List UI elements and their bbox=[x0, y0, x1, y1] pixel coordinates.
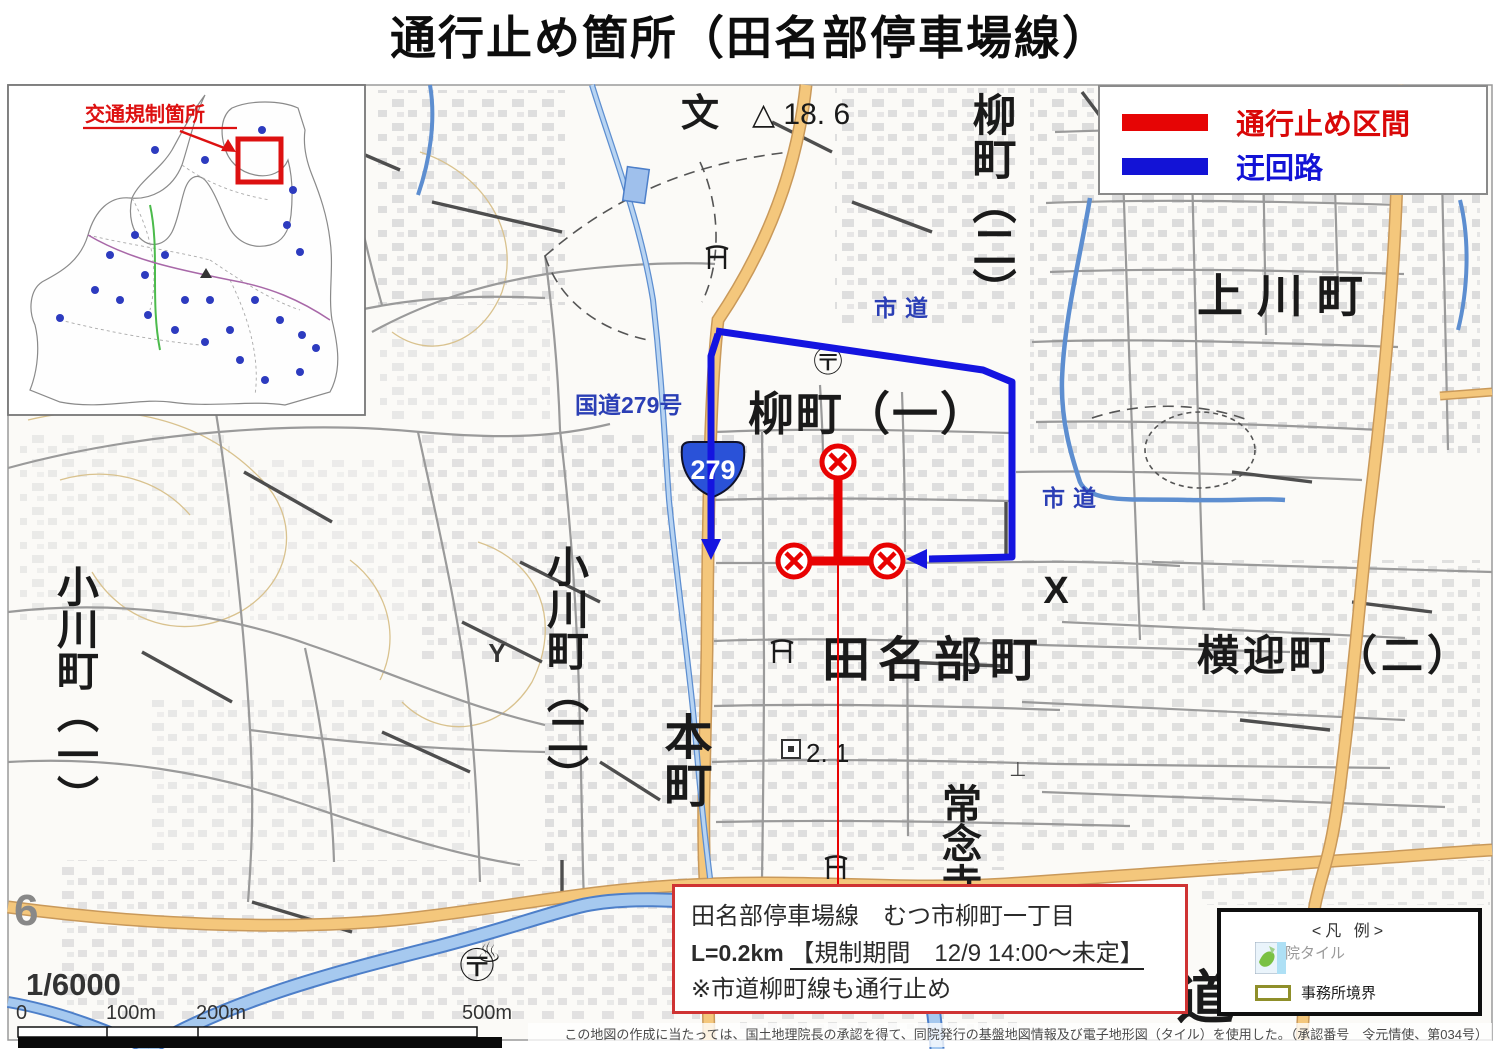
label-shido-right: 市道 bbox=[1042, 485, 1104, 511]
inset-map: 交通規制箇所 bbox=[8, 85, 365, 415]
label-tanabu: 田名部町 bbox=[822, 634, 1046, 687]
office-boundary-label: 事務所境界 bbox=[1301, 982, 1376, 1003]
map-legend: <凡 例> 地理院タイル 事務所境界 bbox=[1217, 908, 1482, 1016]
attribution-text: この地図の作成に当たっては、国土地理院長の承認を得て、同院発行の基盤地図情報及び… bbox=[528, 1023, 1492, 1047]
detour-line-swatch bbox=[1122, 158, 1208, 175]
gsi-tile-icon bbox=[1255, 942, 1286, 974]
label-tile-no: 6 bbox=[14, 886, 38, 935]
label-shido-top: 市道 bbox=[874, 295, 936, 321]
closed-line-label: 通行止め区間 bbox=[1236, 101, 1410, 143]
label-honcho: 本町 bbox=[657, 712, 713, 808]
closure-road-name: 田名部停車場線 むつ市柳町一丁目 bbox=[691, 896, 1169, 931]
no-entry-icon bbox=[871, 545, 903, 577]
route-legend: 通行止め区間 迂回路 bbox=[1098, 85, 1488, 195]
onsen-icon: ♨ bbox=[476, 937, 501, 968]
office-boundary-swatch bbox=[1255, 985, 1291, 1001]
label-ogawa-1: 小川町（一） bbox=[52, 565, 99, 817]
scale-tick-100: 100m bbox=[106, 1002, 156, 1024]
label-y-mark: Y bbox=[488, 638, 505, 668]
route-shield-number: 279 bbox=[690, 455, 735, 485]
inset-caption: 交通規制箇所 bbox=[85, 102, 205, 126]
page: 通行止め箇所（田名部停車場線） bbox=[0, 0, 1500, 1049]
no-entry-icon bbox=[822, 446, 854, 478]
detour-line-label: 迂回路 bbox=[1236, 145, 1323, 187]
benchmark-dot bbox=[788, 746, 794, 752]
label-scale-ratio: 1/6000 bbox=[26, 967, 121, 1002]
label-yokomukae: 横迎町（二） bbox=[1197, 632, 1473, 679]
scale-tick-0: 0 bbox=[16, 1002, 27, 1024]
label-x-mark: X bbox=[1043, 570, 1069, 612]
scale-tick-200: 200m bbox=[196, 1002, 246, 1024]
closed-line-swatch bbox=[1122, 114, 1208, 131]
scale-tick-500: 500m bbox=[462, 1002, 512, 1024]
label-ogawa-2: 小川町（二） bbox=[542, 545, 589, 797]
no-entry-icon bbox=[778, 545, 810, 577]
closure-info-box: 田名部停車場線 むつ市柳町一丁目 L=0.2km 【規制期間 12/9 14:0… bbox=[672, 884, 1188, 1014]
label-benchmark: 2. 1 bbox=[806, 738, 849, 768]
closure-length: L=0.2km bbox=[691, 940, 784, 966]
label-yanagimachi-1: 柳町（一） bbox=[748, 388, 988, 440]
map-legend-title: <凡 例> bbox=[1221, 917, 1478, 941]
label-kamikawa: 上川町 bbox=[1197, 270, 1377, 322]
closure-period-text: 【規制期間 12/9 14:00～未定】 bbox=[790, 940, 1143, 970]
label-kokudo279: 国道279号 bbox=[575, 392, 682, 418]
label-elevation: △ 18. 6 bbox=[752, 98, 850, 131]
closure-period: L=0.2km 【規制期間 12/9 14:00～未定】 bbox=[691, 933, 1169, 968]
closure-note: ※市道柳町線も通行止め bbox=[691, 969, 1169, 1004]
school-icon: 文 bbox=[681, 93, 719, 135]
grave-icon: ⊥ bbox=[1009, 759, 1026, 781]
label-yanagimachi-2: 柳町（二） bbox=[966, 92, 1017, 312]
